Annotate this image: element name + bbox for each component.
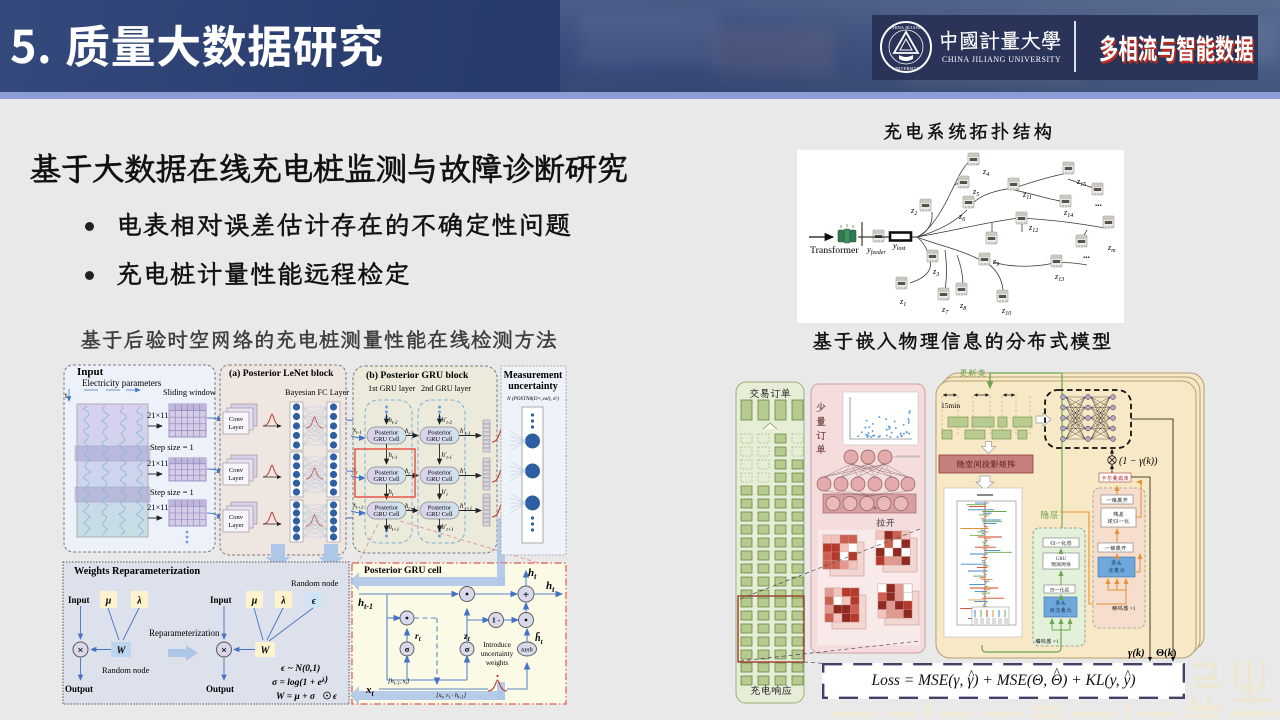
svg-text:GRU Cell: GRU Cell: [426, 511, 452, 518]
svg-text:ϵ ~ N(0,1): ϵ ~ N(0,1): [281, 663, 320, 674]
svg-text:归一化层: 归一化层: [1050, 539, 1073, 547]
svg-text:σ: σ: [465, 644, 470, 654]
svg-text:μ: μ: [251, 596, 258, 607]
svg-text:更新类: 更新类: [959, 367, 986, 379]
svg-text:(b) Posterior GRU block: (b) Posterior GRU block: [366, 370, 469, 381]
svg-text:Introduce: Introduce: [483, 641, 511, 649]
svg-text:W = μ + σ: W = μ + σ: [276, 692, 316, 702]
svg-text:ϵ: ϵ: [312, 596, 317, 607]
svg-text:自注意力: 自注意力: [1049, 606, 1071, 614]
svg-text:Transformer: Transformer: [810, 245, 859, 256]
svg-text:Measurement: Measurement: [504, 370, 563, 381]
svg-text:Θ(k): Θ(k): [1156, 648, 1177, 659]
svg-text:yfeeder: yfeeder: [866, 244, 886, 256]
svg-text:Output: Output: [206, 684, 234, 694]
svg-text:ylost: ylost: [892, 240, 906, 252]
svg-text:21×11: 21×11: [147, 410, 168, 420]
svg-text:z12: z12: [1028, 223, 1038, 234]
svg-text:Input: Input: [210, 595, 232, 605]
svg-text:z4: z4: [982, 167, 989, 178]
svg-text:×: ×: [221, 645, 227, 657]
svg-text:GRU Cell: GRU Cell: [426, 476, 452, 483]
svg-text:Conv: Conv: [229, 416, 244, 423]
svg-text:Input: Input: [68, 595, 90, 605]
svg-text:拉开: 拉开: [876, 516, 895, 529]
svg-text:Conv: Conv: [229, 467, 244, 474]
svg-text:×: ×: [77, 645, 83, 657]
svg-text:λ: λ: [280, 596, 286, 607]
svg-text:21×11: 21×11: [147, 502, 168, 512]
svg-text:z2: z2: [910, 206, 917, 217]
svg-text:tanh: tanh: [521, 647, 533, 654]
svg-text:Layer: Layer: [228, 475, 244, 482]
svg-text:Output: Output: [65, 684, 93, 694]
svg-text:z1: z1: [899, 297, 906, 308]
svg-text:Electricity parameters: Electricity parameters: [82, 378, 162, 388]
svg-text:z3: z3: [932, 267, 939, 278]
svg-text:z13: z13: [1054, 272, 1064, 283]
svg-text:Layer: Layer: [228, 424, 244, 431]
svg-text:15min: 15min: [941, 401, 960, 410]
svg-text:zm: zm: [1107, 243, 1116, 254]
svg-text:z11: z11: [1022, 190, 1032, 201]
svg-text:Weights Reparameterization: Weights Reparameterization: [74, 566, 200, 577]
svg-text:z7: z7: [941, 305, 949, 316]
svg-text:一维展开: 一维展开: [1106, 496, 1129, 504]
svg-text:W: W: [261, 646, 271, 657]
svg-text:Sliding window: Sliding window: [163, 388, 216, 397]
svg-text:σ: σ: [405, 644, 410, 654]
svg-text:UNIVERSITY: UNIVERSITY: [893, 66, 921, 71]
svg-text:z6: z6: [958, 212, 965, 223]
svg-text:逆归一化: 逆归一化: [1107, 517, 1130, 525]
svg-text:注意力: 注意力: [1108, 566, 1125, 574]
svg-text:CHINA JILIANG: CHINA JILIANG: [890, 25, 923, 30]
svg-text:Random node: Random node: [291, 578, 339, 588]
svg-text:weights: weights: [486, 659, 509, 667]
svg-text:Step size = 1: Step size = 1: [150, 442, 194, 452]
svg-text:uncertainty: uncertainty: [508, 381, 557, 392]
svg-text:卡尔曼滤波: 卡尔曼滤波: [1101, 474, 1129, 482]
svg-text:Layer: Layer: [228, 522, 244, 529]
svg-text:归一化层: 归一化层: [1049, 588, 1069, 594]
svg-text:1st GRU layer: 1st GRU layer: [368, 384, 416, 393]
svg-text:21×11: 21×11: [147, 458, 168, 468]
svg-text:z8: z8: [959, 301, 966, 312]
svg-text:Input: Input: [77, 366, 104, 378]
svg-text:预测网络: 预测网络: [1051, 561, 1071, 568]
svg-text:2nd GRU layer: 2nd GRU layer: [421, 384, 471, 393]
svg-text:Bayesian FC Layer: Bayesian FC Layer: [285, 388, 349, 397]
svg-text:z15: z15: [1076, 177, 1086, 188]
svg-text:N (POSTNθ(D×,val), σ²): N (POSTNθ(D×,val), σ²): [506, 395, 559, 402]
svg-text:1 -: 1 -: [492, 616, 501, 625]
svg-text:W: W: [117, 646, 127, 657]
svg-text:隐层: 隐层: [1040, 508, 1059, 521]
svg-text:Reparameterization: Reparameterization: [149, 628, 220, 638]
svg-text:Step size = 1: Step size = 1: [150, 487, 194, 497]
svg-text:(a) Posterior LeNet block: (a) Posterior LeNet block: [229, 368, 334, 379]
svg-text:GRU Cell: GRU Cell: [373, 476, 399, 483]
svg-text:GRU Cell: GRU Cell: [426, 436, 452, 443]
svg-text:GRU Cell: GRU Cell: [373, 436, 399, 443]
svg-text:少量订单: 少量订单: [814, 400, 828, 456]
svg-text:γ(k): γ(k): [1128, 648, 1145, 659]
svg-text:Posterior GRU cell: Posterior GRU cell: [364, 565, 442, 576]
svg-text:Random node: Random node: [102, 665, 150, 675]
svg-text:...: ...: [1083, 250, 1090, 260]
svg-text:GRU Cell: GRU Cell: [373, 511, 399, 518]
svg-text:一维展开: 一维展开: [1104, 544, 1127, 552]
svg-text:+: +: [523, 589, 529, 601]
svg-text:交易订单: 交易订单: [749, 386, 791, 400]
svg-text:隐空间投影矩阵: 隐空间投影矩阵: [956, 459, 1016, 470]
svg-text:μ: μ: [105, 596, 112, 607]
svg-text:解码器 ×1: 解码器 ×1: [1112, 604, 1136, 612]
svg-text:z10: z10: [1001, 306, 1011, 317]
svg-text:λ: λ: [136, 596, 142, 607]
svg-text:Conv: Conv: [229, 514, 244, 521]
svg-text:z14: z14: [1063, 208, 1073, 219]
svg-text:编码器 ×1: 编码器 ×1: [1035, 637, 1059, 645]
svg-text:...: ...: [1095, 198, 1102, 208]
svg-text:z9: z9: [992, 257, 999, 268]
svg-text:充电响应: 充电响应: [750, 683, 792, 697]
svg-text:(1 − γ(k)): (1 − γ(k)): [1119, 456, 1158, 467]
svg-text:uncertainty: uncertainty: [481, 650, 514, 658]
